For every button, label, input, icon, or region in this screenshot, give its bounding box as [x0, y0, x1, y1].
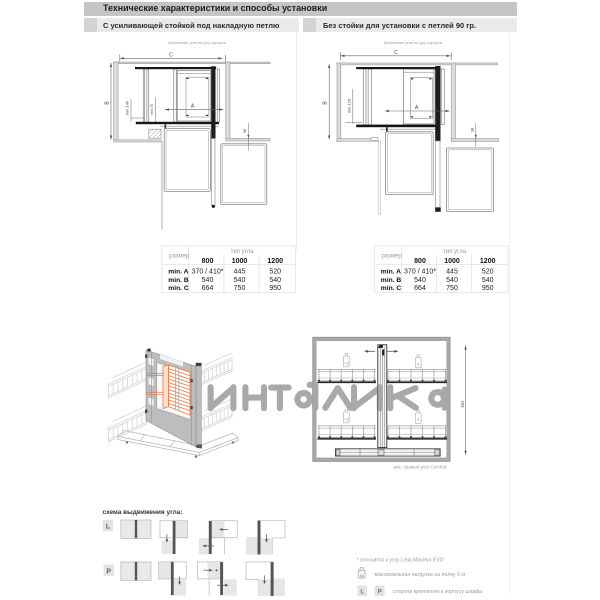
svg-text:800: 800	[202, 258, 214, 265]
svg-text:схема выдвижения угла:: схема выдвижения угла:	[103, 509, 183, 516]
svg-text:5: 5	[417, 418, 419, 422]
svg-text:Крепление угла во дну корпуса: Крепление угла во дну корпуса	[384, 40, 443, 45]
svg-text:B: B	[323, 101, 329, 105]
svg-text:445: 445	[234, 268, 246, 275]
svg-text:604: 604	[460, 400, 465, 408]
svg-text:C: C	[394, 50, 398, 56]
svg-text:A: A	[191, 104, 195, 110]
svg-text:P: P	[106, 568, 111, 575]
svg-text:370 / 410*: 370 / 410*	[404, 268, 436, 275]
svg-text:L: L	[106, 524, 111, 531]
svg-text:C: C	[169, 53, 173, 59]
svg-text:kg: kg	[360, 574, 364, 578]
svg-text:750: 750	[446, 285, 458, 292]
svg-text:445: 445	[446, 268, 458, 275]
svg-text:5: 5	[417, 363, 419, 367]
svg-text:P: P	[377, 589, 382, 596]
svg-text:min. B: min. B	[381, 277, 402, 284]
svg-text:min.146: min.146	[125, 100, 130, 115]
svg-text:520: 520	[482, 268, 494, 275]
svg-text:размер: размер	[382, 254, 403, 260]
svg-text:1200: 1200	[480, 258, 496, 265]
svg-text:540: 540	[414, 277, 426, 284]
svg-text:540: 540	[234, 277, 246, 284]
svg-text:L: L	[360, 589, 364, 596]
svg-text:Крепление угла во рху корпуса: Крепление угла во рху корпуса	[168, 40, 226, 45]
svg-text:* относится к углу Linia Maxim: * относится к углу Linia Maxima EVO	[357, 558, 444, 564]
svg-text:800: 800	[414, 258, 426, 265]
svg-text:min. A: min. A	[168, 268, 188, 275]
svg-text:1000: 1000	[444, 258, 460, 265]
svg-text:min. C: min. C	[168, 285, 189, 292]
svg-text:950: 950	[482, 285, 494, 292]
svg-text:370 / 410*: 370 / 410*	[192, 268, 224, 275]
svg-text:664: 664	[202, 285, 214, 292]
svg-text:B: B	[105, 101, 111, 105]
svg-text:тип угла: тип угла	[443, 249, 467, 255]
svg-text:950: 950	[269, 285, 281, 292]
svg-text:520: 520	[269, 268, 281, 275]
svg-text:min.120: min.120	[346, 98, 351, 113]
svg-text:min. B: min. B	[168, 277, 189, 284]
svg-text:540: 540	[269, 277, 281, 284]
svg-text:максимальная нагрузка на полку: максимальная нагрузка на полку 6 кг	[375, 572, 466, 578]
svg-text:1200: 1200	[267, 258, 283, 265]
svg-text:min.73: min.73	[150, 104, 154, 115]
svg-text:сторона крепления к корпусу шк: сторона крепления к корпусу шкафа	[393, 589, 483, 595]
svg-text:A: A	[415, 105, 419, 111]
svg-text:тип угла: тип угла	[231, 249, 255, 255]
svg-text:размер: размер	[169, 254, 190, 260]
svg-text:38: 38	[243, 129, 247, 133]
svg-text:664: 664	[414, 285, 426, 292]
svg-text:min. C: min. C	[381, 285, 402, 292]
svg-text:рис. правый угол Comfort: рис. правый угол Comfort	[394, 464, 447, 470]
svg-text:750: 750	[234, 285, 246, 292]
svg-text:540: 540	[482, 277, 494, 284]
svg-text:min. A: min. A	[381, 268, 401, 275]
svg-text:38: 38	[471, 128, 475, 132]
svg-text:540: 540	[446, 277, 458, 284]
svg-text:7,5: 7,5	[344, 362, 349, 366]
svg-text:7,5: 7,5	[344, 418, 349, 422]
svg-text:1000: 1000	[232, 258, 248, 265]
svg-text:540: 540	[202, 277, 214, 284]
